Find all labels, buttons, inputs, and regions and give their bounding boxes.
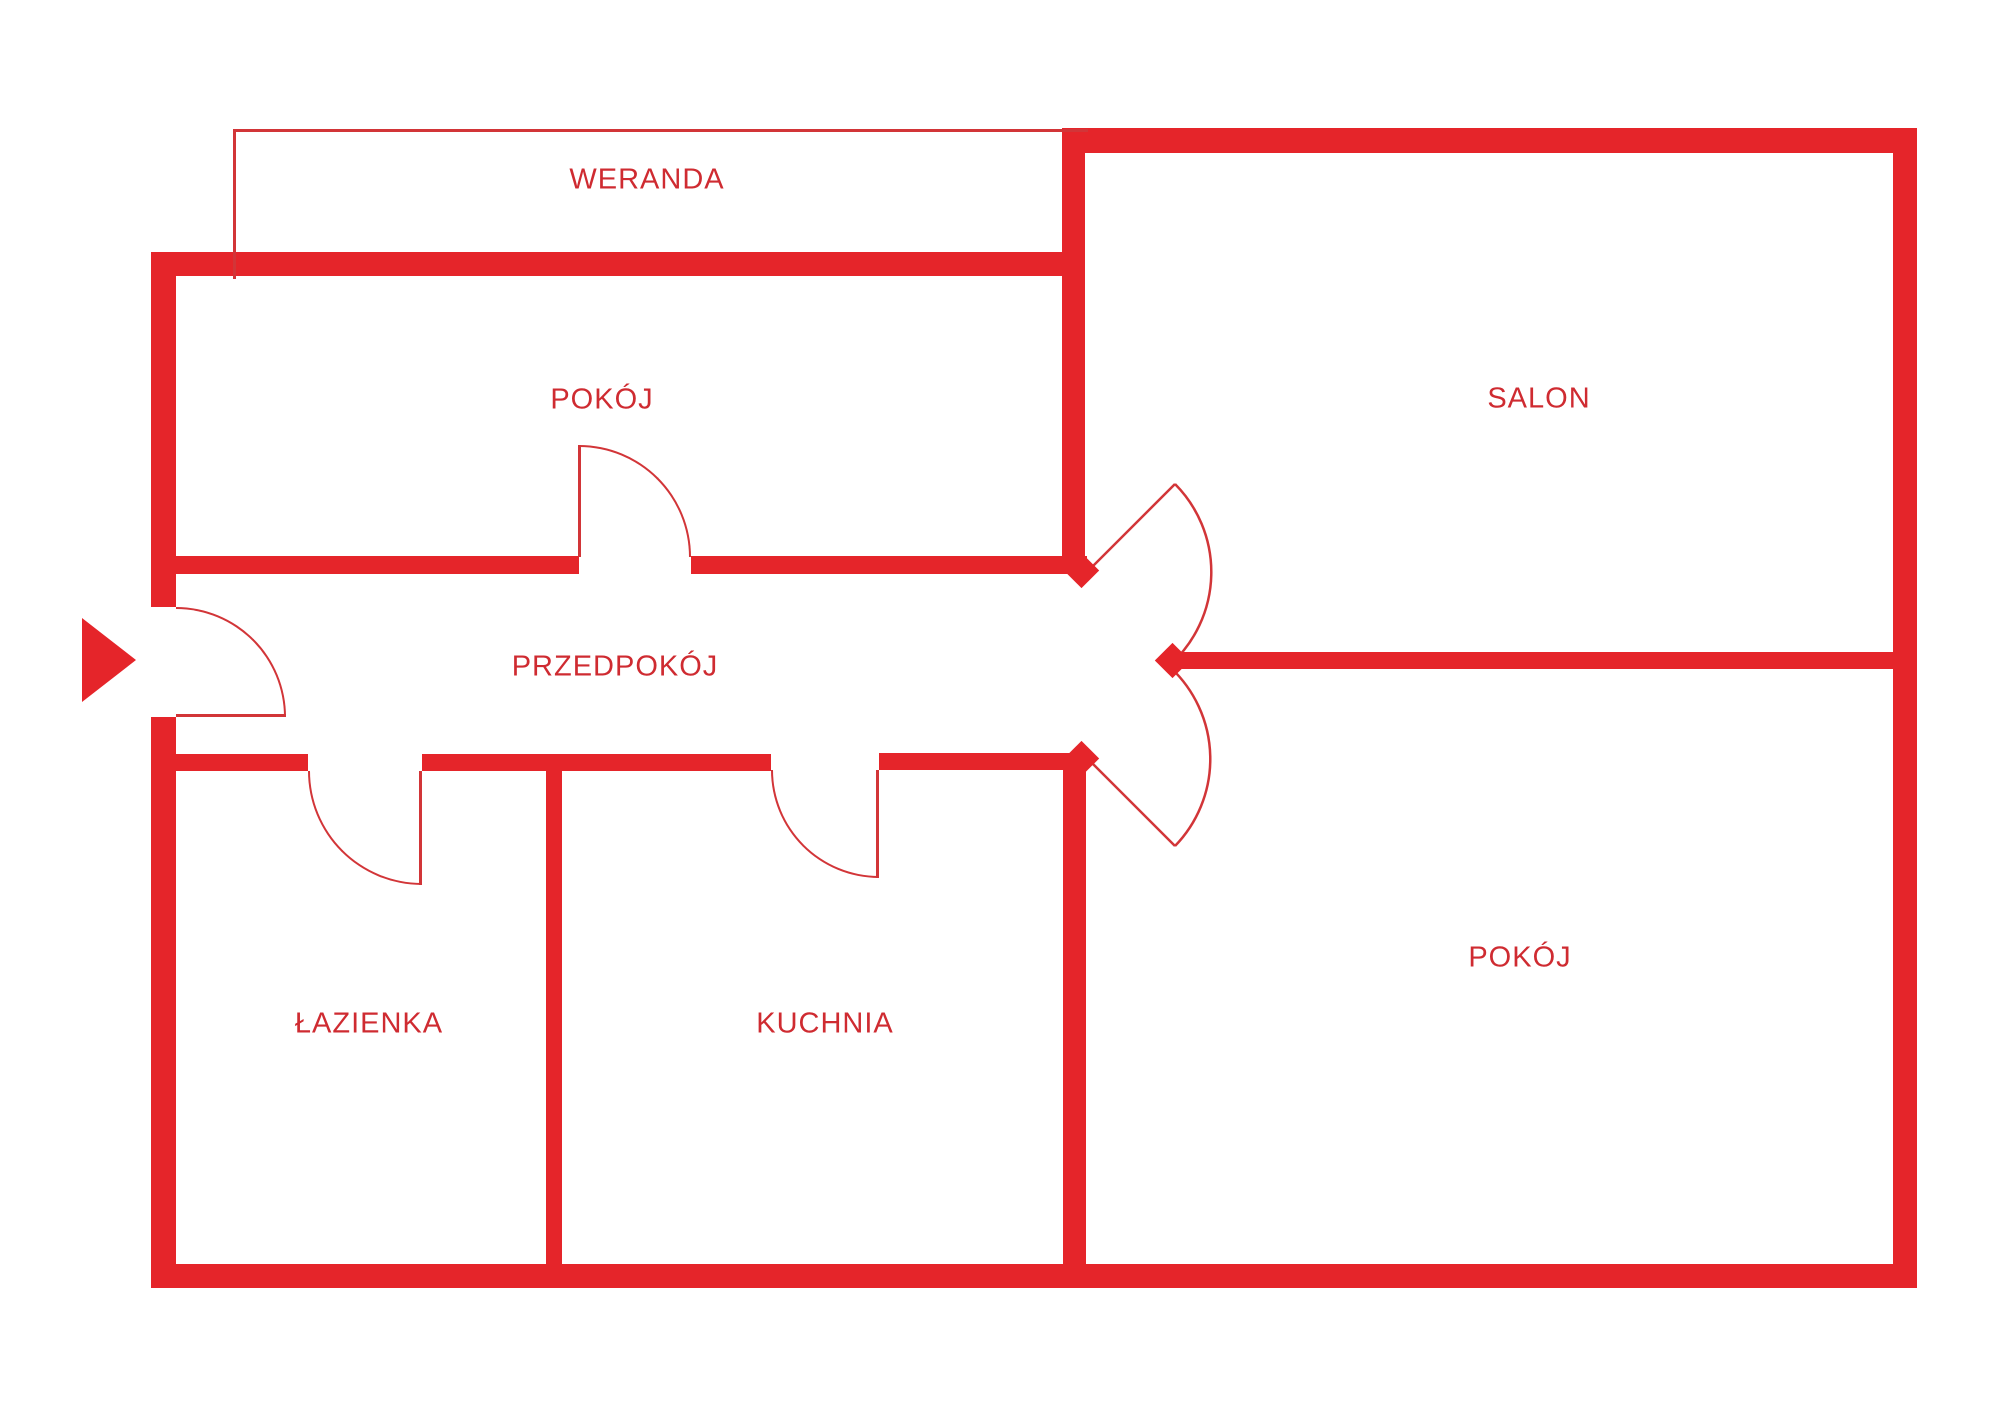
room-label-pokoj-bottom: POKÓJ — [1468, 942, 1571, 975]
bathroom-door-arc — [308, 771, 422, 885]
hall-top-wall-right — [691, 556, 1087, 574]
entrance-door-leaf — [176, 714, 286, 717]
bathroom-kitchen-divider — [546, 754, 562, 1288]
bottom-room-door-arc — [1171, 668, 1210, 846]
salon-door-arc — [1171, 484, 1211, 664]
room-label-kuchnia: KUCHNIA — [756, 1008, 894, 1041]
hall-bottom-wall-a — [176, 754, 308, 771]
hall-bottom-wall-b — [422, 754, 771, 771]
outer-wall-left-upper — [151, 252, 176, 607]
salon-top-wall — [1062, 128, 1917, 153]
entrance-arrow-icon — [82, 618, 136, 702]
outer-wall-bottom — [151, 1264, 1917, 1288]
outer-wall-right — [1893, 128, 1917, 1288]
hall-top-wall-left — [176, 556, 579, 574]
outer-wall-left-lower — [151, 717, 176, 1288]
bottom-room-door-leaf — [1087, 758, 1175, 846]
salon-door-leaf — [1087, 484, 1175, 572]
hall-bottom-wall-c — [879, 753, 1087, 770]
floor-plan: WERANDAPOKÓJSALONPRZEDPOKÓJŁAZIENKAKUCHN… — [0, 0, 2000, 1416]
veranda-outline — [233, 129, 1088, 279]
wall-point-salon-wall-end — [1154, 642, 1189, 677]
room-label-salon: SALON — [1487, 383, 1590, 416]
salon-bottom-wall — [1175, 652, 1893, 669]
room-label-pokoj-top: POKÓJ — [550, 384, 653, 417]
bottom-room-left-wall — [1063, 762, 1086, 1288]
room-label-przedpokoj: PRZEDPOKÓJ — [512, 651, 719, 684]
kitchen-door-leaf — [876, 770, 879, 878]
bathroom-door-leaf — [419, 771, 422, 885]
entrance-door-arc — [176, 607, 286, 717]
kitchen-door-arc — [771, 770, 879, 878]
room-top-door-leaf — [578, 445, 581, 557]
room-label-lazienka: ŁAZIENKA — [295, 1008, 443, 1041]
room-top-door-arc — [579, 445, 691, 557]
room-label-weranda: WERANDA — [569, 164, 724, 197]
